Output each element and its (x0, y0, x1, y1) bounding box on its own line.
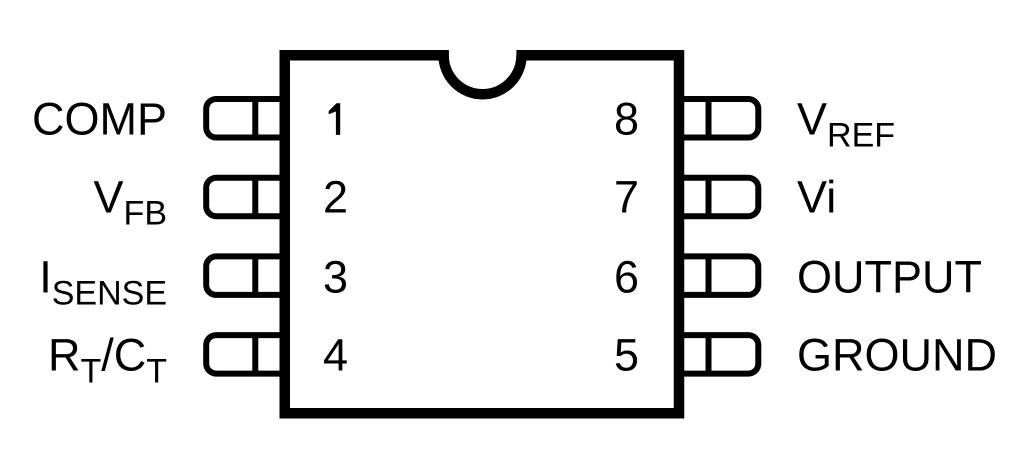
svg-text:2: 2 (323, 172, 348, 223)
svg-text:5: 5 (614, 329, 639, 380)
svg-text:4: 4 (323, 329, 348, 380)
svg-text:3: 3 (323, 251, 348, 302)
svg-text:8: 8 (614, 94, 639, 145)
svg-text:6: 6 (614, 251, 639, 302)
svg-text:7: 7 (614, 172, 639, 223)
svg-text:COMP: COMP (32, 94, 167, 145)
svg-text:Vi: Vi (797, 172, 836, 223)
svg-text:OUTPUT: OUTPUT (797, 251, 982, 302)
svg-text:GROUND: GROUND (797, 329, 997, 380)
